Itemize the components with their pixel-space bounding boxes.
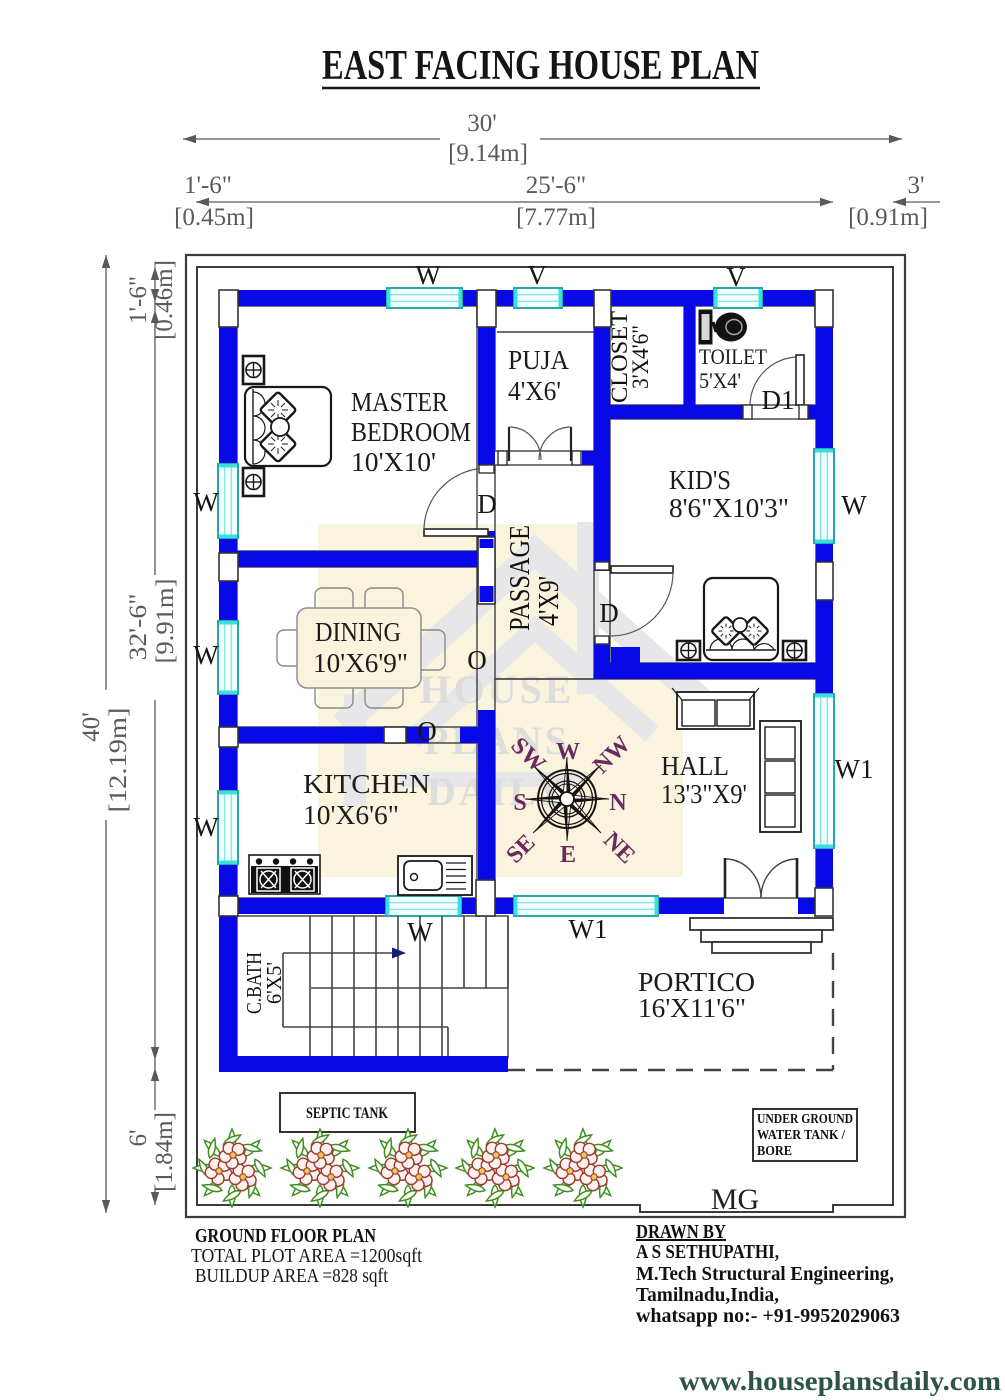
svg-text:[7.77m]: [7.77m] — [516, 204, 596, 231]
svg-text:www.houseplansdaily.com: www.houseplansdaily.com — [679, 1366, 1002, 1396]
svg-text:D1: D1 — [762, 385, 795, 415]
svg-text:M.Tech Structural Engineering,: M.Tech Structural Engineering, — [636, 1263, 894, 1285]
svg-text:A S SETHUPATHI,: A S SETHUPATHI, — [636, 1241, 779, 1263]
svg-text:PUJA: PUJA — [508, 345, 569, 375]
svg-text:HALL: HALL — [661, 751, 729, 781]
svg-text:DAILY: DAILY — [427, 769, 567, 814]
svg-text:whatsapp no:- +91-9952029063: whatsapp no:- +91-9952029063 — [636, 1305, 900, 1327]
svg-text:[9.91m]: [9.91m] — [152, 579, 179, 664]
svg-text:10'X6'6": 10'X6'6" — [303, 800, 399, 830]
svg-text:6': 6' — [125, 1129, 152, 1146]
svg-text:SEPTIC TANK: SEPTIC TANK — [306, 1105, 388, 1122]
svg-text:[0.45m]: [0.45m] — [174, 204, 254, 231]
svg-text:MASTER: MASTER — [351, 387, 448, 417]
svg-text:Tamilnadu,India,: Tamilnadu,India, — [636, 1284, 779, 1306]
svg-text:4'X9': 4'X9' — [534, 576, 565, 626]
svg-text:GROUND FLOOR PLAN: GROUND FLOOR PLAN — [195, 1225, 376, 1247]
svg-text:25'-6": 25'-6" — [526, 172, 587, 199]
svg-text:10'X10': 10'X10' — [351, 447, 436, 477]
svg-text:6'X5': 6'X5' — [262, 962, 286, 1004]
svg-text:[1.84m]: [1.84m] — [151, 1112, 178, 1192]
svg-text:8'6"X10'3": 8'6"X10'3" — [669, 493, 789, 523]
svg-text:D: D — [477, 489, 497, 519]
svg-text:W: W — [841, 490, 867, 520]
svg-text:DINING: DINING — [315, 617, 401, 647]
svg-text:W: W — [415, 260, 441, 290]
svg-text:E: E — [560, 842, 576, 868]
svg-text:W: W — [407, 917, 433, 947]
svg-text:3'X4'6": 3'X4'6" — [628, 325, 653, 389]
svg-text:BORE: BORE — [757, 1144, 792, 1159]
svg-text:BEDROOM: BEDROOM — [351, 417, 471, 447]
svg-text:1'-6": 1'-6" — [184, 172, 232, 199]
svg-text:MG: MG — [711, 1183, 759, 1216]
svg-text:KID'S: KID'S — [669, 465, 731, 495]
svg-text:W: W — [193, 812, 219, 842]
svg-text:N: N — [609, 790, 627, 816]
svg-text:[0.91m]: [0.91m] — [848, 204, 928, 231]
svg-text:PASSAGE: PASSAGE — [504, 525, 536, 631]
svg-text:W1: W1 — [569, 914, 608, 944]
svg-text:1'-6": 1'-6" — [125, 276, 152, 324]
svg-text:3': 3' — [907, 172, 924, 199]
svg-text:DRAWN BY: DRAWN BY — [636, 1221, 726, 1243]
svg-text:TOTAL PLOT AREA =1200sqft: TOTAL PLOT AREA =1200sqft — [191, 1245, 422, 1267]
svg-text:W: W — [193, 487, 219, 517]
svg-text:UNDER GROUND: UNDER GROUND — [757, 1112, 853, 1127]
svg-text:O: O — [417, 716, 437, 746]
svg-text:10'X6'9": 10'X6'9" — [313, 648, 408, 678]
svg-text:V: V — [726, 262, 746, 292]
svg-text:40': 40' — [78, 712, 105, 742]
svg-text:13'3"X9': 13'3"X9' — [661, 779, 747, 809]
svg-text:16'X11'6": 16'X11'6" — [638, 993, 746, 1023]
svg-text:D: D — [599, 598, 619, 628]
svg-text:W: W — [193, 640, 219, 670]
svg-text:KITCHEN: KITCHEN — [303, 769, 430, 799]
svg-text:BUILDUP AREA =828 sqft: BUILDUP AREA =828 sqft — [195, 1265, 388, 1287]
svg-text:O: O — [467, 645, 487, 675]
svg-text:4'X6': 4'X6' — [508, 376, 561, 406]
svg-text:W: W — [556, 739, 580, 765]
svg-text:TOILET: TOILET — [699, 344, 767, 369]
svg-text:HOUSE: HOUSE — [419, 667, 574, 712]
svg-text:V: V — [527, 260, 547, 290]
svg-text:32'-6": 32'-6" — [125, 594, 152, 661]
svg-text:[0.46m]: [0.46m] — [151, 260, 178, 340]
svg-text:W1: W1 — [835, 754, 874, 784]
svg-text:30': 30' — [467, 110, 497, 137]
svg-text:WATER TANK /: WATER TANK / — [757, 1128, 846, 1143]
svg-text:EAST FACING HOUSE PLAN: EAST FACING HOUSE PLAN — [322, 43, 759, 89]
svg-text:5'X4': 5'X4' — [699, 368, 741, 393]
svg-text:[12.19m]: [12.19m] — [105, 708, 132, 813]
svg-text:S: S — [513, 790, 526, 816]
svg-text:[9.14m]: [9.14m] — [448, 140, 528, 167]
